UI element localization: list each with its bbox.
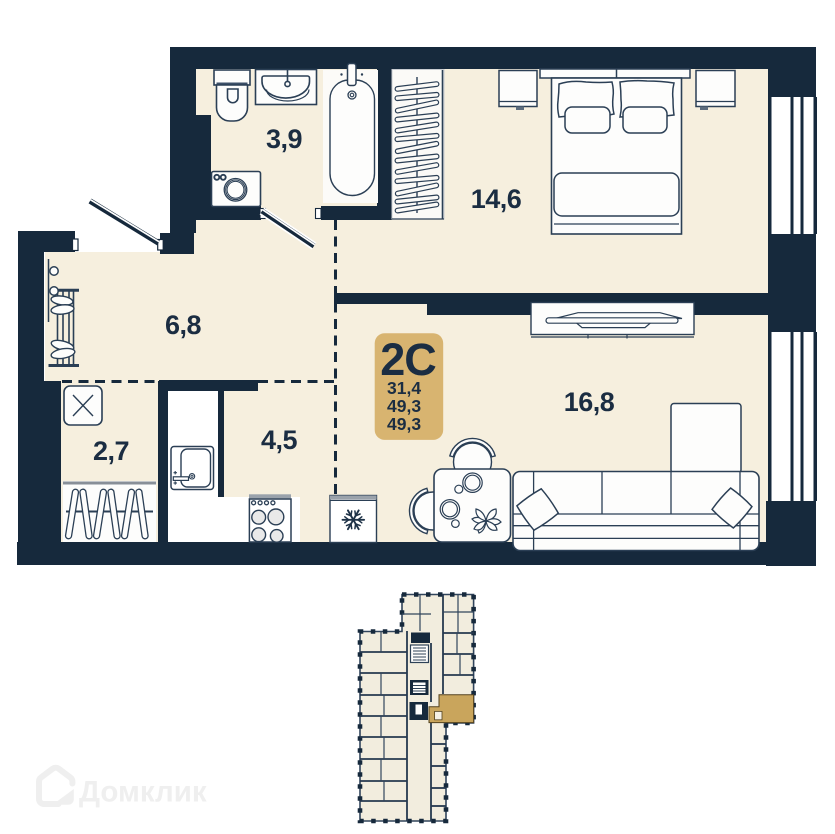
svg-text:49,3: 49,3	[387, 396, 421, 416]
svg-text:Домклик: Домклик	[79, 776, 207, 809]
svg-text:16,8: 16,8	[564, 387, 615, 417]
svg-text:49,3: 49,3	[387, 414, 421, 434]
svg-text:3,9: 3,9	[266, 124, 303, 154]
svg-text:31,4: 31,4	[387, 378, 421, 398]
svg-text:4,5: 4,5	[261, 425, 298, 455]
svg-text:2,7: 2,7	[93, 436, 129, 466]
svg-text:14,6: 14,6	[471, 184, 522, 214]
svg-text:6,8: 6,8	[165, 310, 202, 340]
